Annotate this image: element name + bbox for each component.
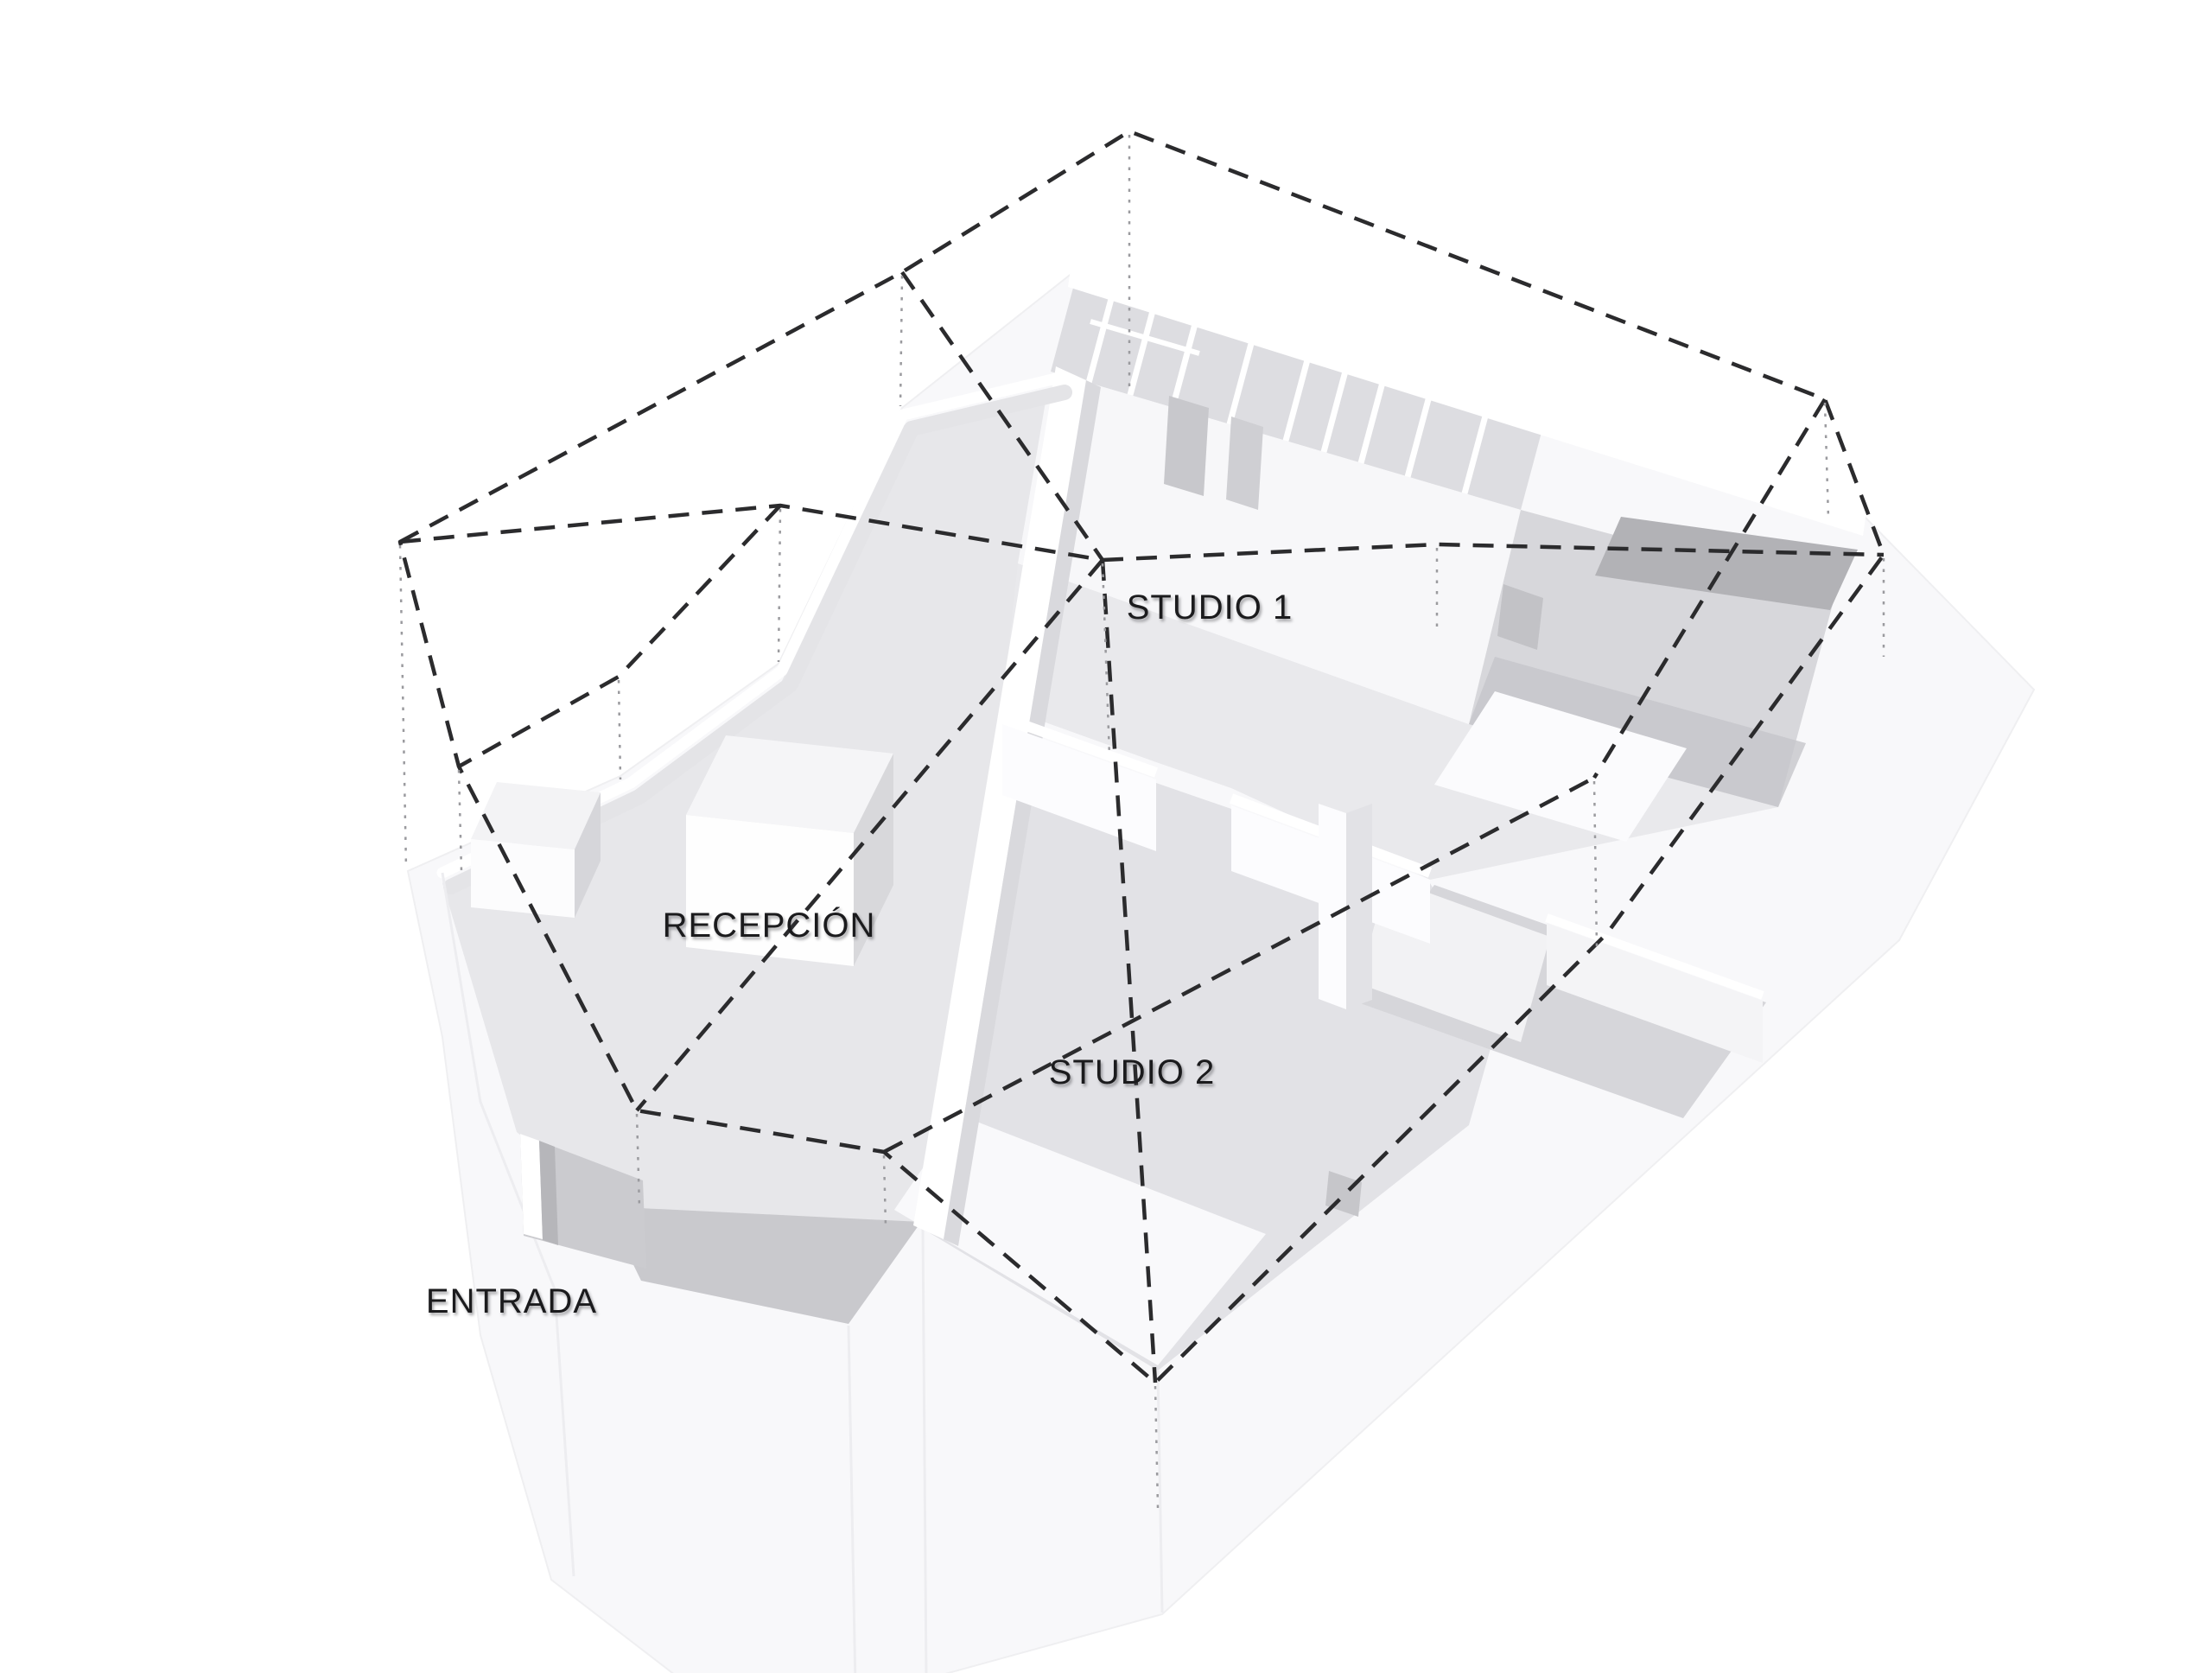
building-model	[408, 263, 2034, 1673]
room-label-reception: RECEPCIÓN	[663, 906, 876, 945]
floor-plan-3d-view: STUDIO 1 STUDIO 2 RECEPCIÓN ENTRADA	[0, 0, 2212, 1673]
studio2-freestanding-wall	[1319, 804, 1372, 1009]
small-cube	[471, 782, 601, 918]
room-label-entrance: ENTRADA	[426, 1282, 597, 1320]
room-label-studio-2: STUDIO 2	[1049, 1053, 1215, 1091]
architectural-diagram-canvas: STUDIO 1 STUDIO 2 RECEPCIÓN ENTRADA	[0, 0, 2212, 1673]
studio1-back-door-2	[1226, 417, 1263, 510]
room-label-studio-1: STUDIO 1	[1127, 588, 1293, 627]
studio1-back-door-1	[1164, 396, 1209, 496]
